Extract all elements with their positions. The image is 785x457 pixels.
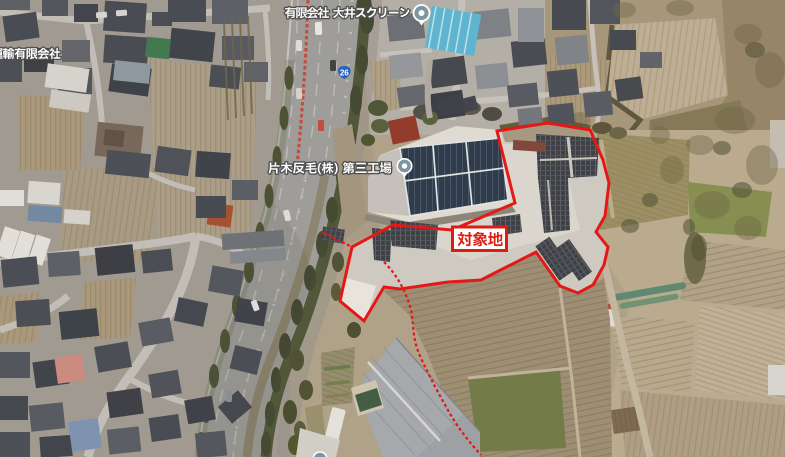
svg-text:26: 26 xyxy=(340,69,349,78)
